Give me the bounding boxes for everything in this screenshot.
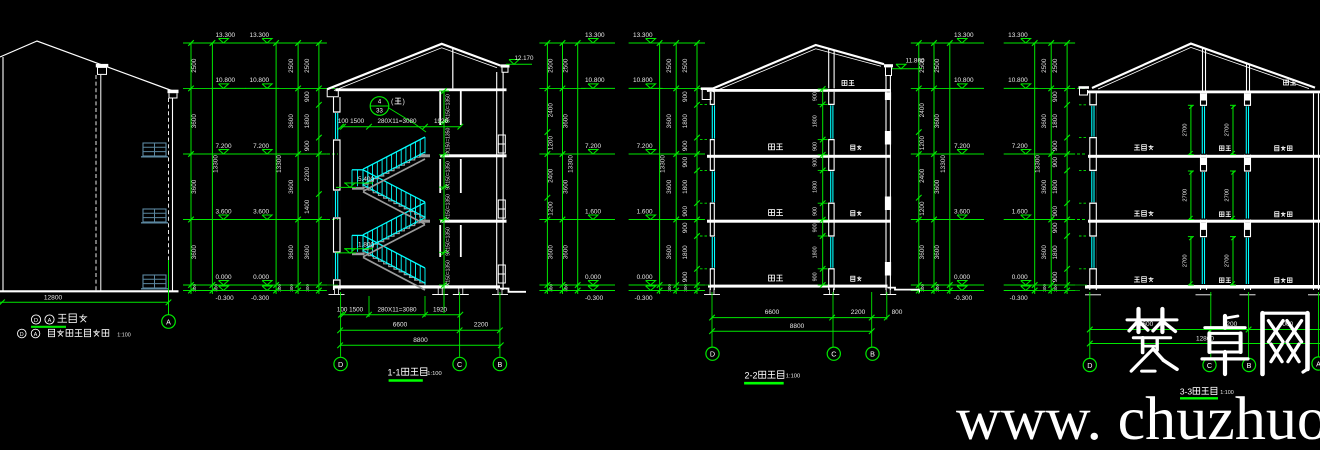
svg-text:13.300: 13.300 <box>216 32 236 39</box>
svg-text:3600: 3600 <box>191 245 198 260</box>
svg-text:13.300: 13.300 <box>250 32 270 39</box>
svg-text:900: 900 <box>682 140 689 151</box>
svg-text:13300: 13300 <box>212 155 219 173</box>
svg-text:A: A <box>48 318 52 324</box>
svg-text:1800: 1800 <box>813 181 819 193</box>
svg-text:13.300: 13.300 <box>585 32 605 39</box>
svg-text:C: C <box>1207 361 1212 370</box>
svg-text:1:100: 1:100 <box>117 333 131 339</box>
svg-text:1:100: 1:100 <box>427 371 442 377</box>
svg-text:2500: 2500 <box>547 58 554 73</box>
svg-text:900: 900 <box>1052 206 1059 217</box>
svg-text:1920: 1920 <box>433 307 448 314</box>
svg-text:2400: 2400 <box>547 168 554 183</box>
svg-text:900: 900 <box>813 92 819 101</box>
svg-text:9X150=1350: 9X150=1350 <box>445 260 451 289</box>
svg-text:7.200: 7.200 <box>253 143 269 150</box>
svg-text:1800: 1800 <box>813 246 819 258</box>
svg-text:1200: 1200 <box>919 136 926 151</box>
svg-text:3600: 3600 <box>934 114 941 129</box>
svg-text:-0.300: -0.300 <box>634 295 653 302</box>
svg-text:1.600: 1.600 <box>1012 208 1028 215</box>
svg-text:2500: 2500 <box>1041 58 1048 73</box>
svg-text:2500: 2500 <box>288 58 295 73</box>
svg-text:0.000: 0.000 <box>954 274 970 281</box>
svg-text:2-2: 2-2 <box>744 371 757 381</box>
svg-text:9X150=1350: 9X150=1350 <box>445 128 451 157</box>
svg-text:A: A <box>1316 359 1320 368</box>
svg-text:2700: 2700 <box>1182 189 1188 202</box>
svg-text:1.600: 1.600 <box>637 208 653 215</box>
svg-text:2700: 2700 <box>1182 123 1188 136</box>
svg-text:3.600: 3.600 <box>216 208 232 215</box>
svg-text:1200: 1200 <box>547 136 554 151</box>
svg-text:3600: 3600 <box>191 179 198 194</box>
svg-text:900: 900 <box>1052 156 1059 167</box>
svg-text:1800: 1800 <box>682 179 689 194</box>
svg-text:1920: 1920 <box>434 118 449 125</box>
svg-text:1800: 1800 <box>682 114 689 129</box>
svg-text:3.600: 3.600 <box>253 208 269 215</box>
svg-text:1800: 1800 <box>682 245 689 260</box>
svg-text:13300: 13300 <box>660 155 667 173</box>
svg-text:3600: 3600 <box>563 179 570 194</box>
svg-text:-0.300: -0.300 <box>1010 295 1029 302</box>
svg-text:900: 900 <box>813 158 819 167</box>
svg-text:-0.300: -0.300 <box>216 295 235 302</box>
svg-text:1800: 1800 <box>1052 179 1059 194</box>
svg-text:3600: 3600 <box>547 245 554 260</box>
svg-text:13300: 13300 <box>568 155 575 173</box>
svg-text:1800: 1800 <box>813 115 819 127</box>
svg-text:7.200: 7.200 <box>1012 143 1028 150</box>
svg-text:2700: 2700 <box>1225 123 1231 136</box>
svg-text:3600: 3600 <box>563 114 570 129</box>
svg-text:2700: 2700 <box>1182 254 1188 267</box>
svg-text:3600: 3600 <box>934 179 941 194</box>
svg-text:900: 900 <box>682 156 689 167</box>
svg-text:1800: 1800 <box>1052 245 1059 260</box>
svg-text:3600: 3600 <box>288 245 295 260</box>
svg-text:2500: 2500 <box>934 58 941 73</box>
svg-text:900: 900 <box>682 91 689 102</box>
svg-text:13.300: 13.300 <box>633 32 653 39</box>
svg-text:3600: 3600 <box>919 245 926 260</box>
svg-text:5.400: 5.400 <box>358 176 374 183</box>
svg-text:280X11=3080: 280X11=3080 <box>378 118 417 125</box>
svg-text:7.200: 7.200 <box>954 143 970 150</box>
svg-text:2700: 2700 <box>1225 189 1231 202</box>
svg-text:13.300: 13.300 <box>954 32 974 39</box>
svg-text:7.200: 7.200 <box>216 143 232 150</box>
svg-text:1.600: 1.600 <box>585 208 601 215</box>
svg-text:3600: 3600 <box>666 114 673 129</box>
svg-text:10.800: 10.800 <box>954 77 974 84</box>
svg-text:900: 900 <box>682 206 689 217</box>
svg-text:9X150=1350: 9X150=1350 <box>445 194 451 223</box>
svg-text:B: B <box>870 350 875 359</box>
svg-text:10.800: 10.800 <box>216 77 236 84</box>
svg-text:-0.300: -0.300 <box>251 295 270 302</box>
svg-text:900: 900 <box>1052 222 1059 233</box>
svg-text:1-1: 1-1 <box>387 368 400 378</box>
svg-text:13300: 13300 <box>1035 155 1042 173</box>
svg-text:1400: 1400 <box>304 199 311 214</box>
svg-text:2400: 2400 <box>919 168 926 183</box>
svg-text:12800: 12800 <box>44 294 63 301</box>
svg-text:2500: 2500 <box>1052 58 1059 73</box>
svg-text:2200: 2200 <box>851 309 866 316</box>
svg-text:3600: 3600 <box>1041 114 1048 129</box>
svg-text:3600: 3600 <box>666 245 673 260</box>
svg-text:10.800: 10.800 <box>633 77 653 84</box>
svg-text:1:100: 1:100 <box>786 374 801 380</box>
svg-text:B: B <box>1247 361 1252 370</box>
svg-text:D: D <box>1087 361 1092 370</box>
svg-text:3600: 3600 <box>563 245 570 260</box>
svg-text:10.800: 10.800 <box>1008 77 1028 84</box>
svg-text:www. chuzhuo: www. chuzhuo <box>956 386 1320 450</box>
svg-text:2500: 2500 <box>682 58 689 73</box>
svg-text:6600: 6600 <box>393 322 408 329</box>
svg-text:-0.300: -0.300 <box>954 295 973 302</box>
svg-text:D: D <box>710 350 715 359</box>
svg-text:900: 900 <box>682 222 689 233</box>
svg-text:13300: 13300 <box>940 155 947 173</box>
svg-text:2400: 2400 <box>547 103 554 118</box>
svg-text:3600: 3600 <box>1041 245 1048 260</box>
svg-text:13300: 13300 <box>276 155 283 173</box>
svg-text:900: 900 <box>813 223 819 232</box>
svg-text:800: 800 <box>892 309 903 316</box>
svg-text:900: 900 <box>304 91 311 102</box>
svg-text:B: B <box>498 360 503 369</box>
svg-text:900: 900 <box>304 140 311 151</box>
svg-text:1.800: 1.800 <box>358 242 374 249</box>
svg-text:2500: 2500 <box>563 58 570 73</box>
svg-text:2200: 2200 <box>474 322 489 329</box>
svg-text:): ) <box>403 99 405 106</box>
svg-text:3600: 3600 <box>1041 179 1048 194</box>
svg-text:7.200: 7.200 <box>585 143 601 150</box>
svg-text:D: D <box>20 332 24 338</box>
svg-text:280X11=3080: 280X11=3080 <box>378 307 417 314</box>
svg-text:2500: 2500 <box>191 58 198 73</box>
svg-text:900: 900 <box>1052 91 1059 102</box>
svg-text:33: 33 <box>376 109 383 115</box>
svg-text:C: C <box>457 360 462 369</box>
svg-text:0.000: 0.000 <box>585 274 601 281</box>
svg-text:10.800: 10.800 <box>250 77 270 84</box>
svg-text:2700: 2700 <box>1225 254 1231 267</box>
svg-text:11.860: 11.860 <box>906 58 926 65</box>
svg-text:2500: 2500 <box>304 58 311 73</box>
svg-text:0.000: 0.000 <box>1012 274 1028 281</box>
svg-text:1200: 1200 <box>919 201 926 216</box>
svg-text:A: A <box>34 332 38 338</box>
svg-text:1200: 1200 <box>547 201 554 216</box>
svg-text:2400: 2400 <box>919 103 926 118</box>
svg-text:900: 900 <box>682 271 689 282</box>
svg-text:2500: 2500 <box>666 58 673 73</box>
svg-text:13.300: 13.300 <box>1008 32 1028 39</box>
svg-text:2200: 2200 <box>304 167 311 182</box>
svg-text:900: 900 <box>813 207 819 216</box>
svg-text:3600: 3600 <box>934 245 941 260</box>
svg-text:7.200: 7.200 <box>637 143 653 150</box>
svg-text:12.170: 12.170 <box>515 55 534 62</box>
svg-text:D: D <box>338 360 343 369</box>
svg-text:A: A <box>166 319 171 326</box>
svg-text:900: 900 <box>1052 271 1059 282</box>
svg-text:8800: 8800 <box>790 323 805 330</box>
svg-text:3600: 3600 <box>288 179 295 194</box>
svg-text:3600: 3600 <box>288 114 295 129</box>
svg-text:1800: 1800 <box>1052 114 1059 129</box>
svg-text:9X150=1350: 9X150=1350 <box>445 227 451 256</box>
svg-text:100 1500: 100 1500 <box>338 118 365 125</box>
svg-text:8800: 8800 <box>413 337 428 344</box>
svg-text:9X150=1350: 9X150=1350 <box>445 161 451 190</box>
svg-text:D: D <box>34 318 38 324</box>
svg-text:0.000: 0.000 <box>637 274 653 281</box>
svg-text:-0.300: -0.300 <box>585 295 604 302</box>
svg-text:C: C <box>831 350 836 359</box>
svg-text:3600: 3600 <box>304 245 311 260</box>
svg-text:900: 900 <box>813 142 819 151</box>
svg-text:12800: 12800 <box>1196 335 1214 342</box>
svg-text:3600: 3600 <box>191 114 198 129</box>
svg-text:900: 900 <box>813 272 819 281</box>
svg-text:3600: 3600 <box>666 179 673 194</box>
svg-text:10.800: 10.800 <box>585 77 605 84</box>
svg-text:0.000: 0.000 <box>253 274 269 281</box>
svg-text:6600: 6600 <box>765 309 780 316</box>
svg-text:900: 900 <box>1052 140 1059 151</box>
svg-text:0.000: 0.000 <box>216 274 232 281</box>
svg-text:1800: 1800 <box>304 114 311 129</box>
svg-text:3.600: 3.600 <box>954 208 970 215</box>
